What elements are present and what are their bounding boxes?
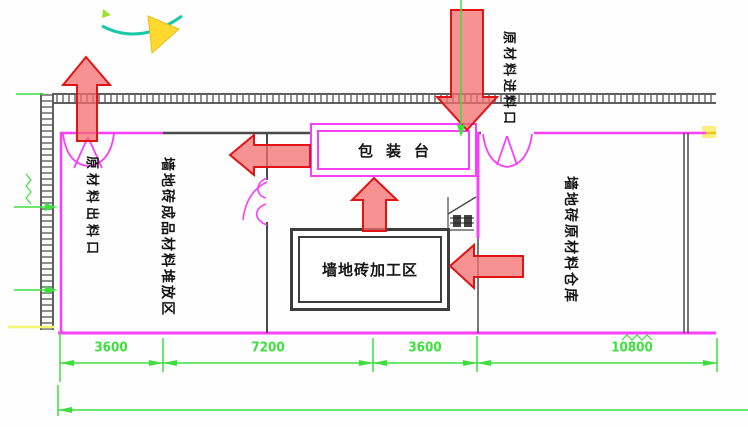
dim-label-4: 10800 [611,340,653,355]
dim-label-2: 7200 [251,340,284,355]
dim-label-1: 3600 [94,340,127,355]
dimension-linework [0,0,748,427]
dim-label-3: 3600 [408,340,441,355]
dimension-arrowheads [45,125,717,413]
floor-plan: 包装台 墙地砖加工区 原材料出料口 墙地砖成品材料堆放区 墙地砖原材料仓库 原材… [0,0,748,427]
